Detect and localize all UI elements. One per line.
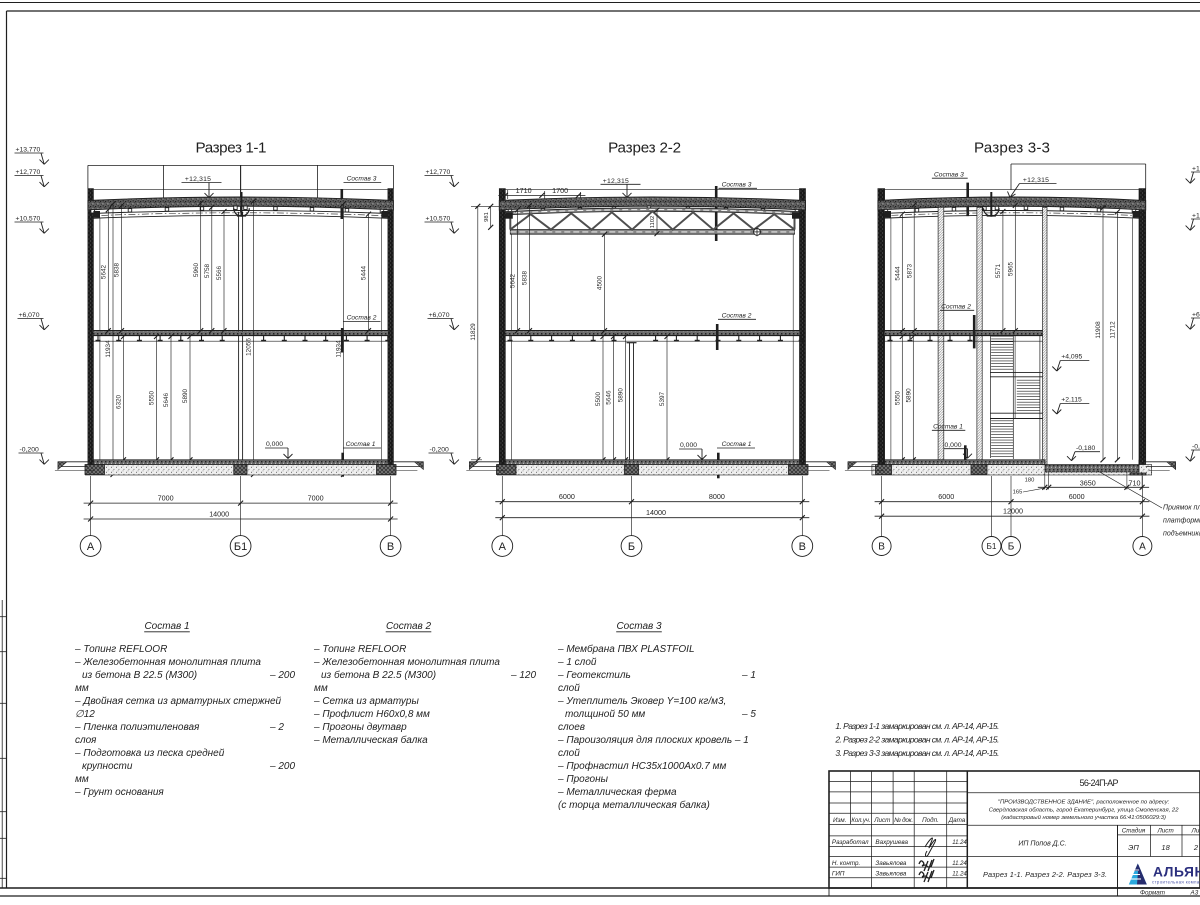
- svg-text:– 120: – 120: [510, 670, 536, 681]
- svg-text:12000: 12000: [1003, 507, 1023, 516]
- svg-text:5571: 5571: [995, 263, 1002, 278]
- svg-text:+12,770: +12,770: [1192, 165, 1200, 172]
- svg-text:ЭП: ЭП: [1128, 843, 1139, 852]
- svg-text:№ док.: № док.: [894, 816, 913, 824]
- svg-text:Разработал: Разработал: [832, 838, 869, 846]
- svg-text:Б: Б: [1008, 542, 1015, 553]
- svg-text:1700: 1700: [552, 186, 568, 195]
- svg-text:Н. контр.: Н. контр.: [832, 860, 860, 867]
- svg-text:11934: 11934: [105, 340, 112, 358]
- svg-text:5965: 5965: [1007, 261, 1014, 276]
- svg-text:+12,315: +12,315: [603, 178, 629, 185]
- svg-text:Приямок пл: Приямок пл: [1163, 505, 1200, 512]
- svg-text:11829: 11829: [470, 323, 477, 341]
- svg-text:5444: 5444: [361, 265, 368, 280]
- svg-text:– 200: – 200: [269, 670, 295, 681]
- svg-text:+12,770: +12,770: [426, 169, 451, 176]
- svg-text:Разрез 3-3: Разрез 3-3: [974, 140, 1050, 157]
- svg-text:В: В: [878, 542, 885, 553]
- svg-text:(кадастровый номер земельного: (кадастровый номер земельного участка 66…: [1001, 814, 1166, 821]
- svg-text:165: 165: [1013, 490, 1023, 496]
- svg-text:Разрез 2-2: Разрез 2-2: [608, 140, 681, 157]
- svg-text:5838: 5838: [114, 262, 121, 277]
- svg-text:– Металлическая балка: – Металлическая балка: [313, 734, 428, 746]
- svg-text:Разрез 1-1. Разрез 2-2. Разрез: Разрез 1-1. Разрез 2-2. Разрез 3-3.: [983, 870, 1107, 879]
- svg-text:Изм.: Изм.: [833, 817, 846, 824]
- svg-text:Формат: Формат: [1140, 890, 1165, 897]
- svg-text:5444: 5444: [894, 266, 901, 281]
- svg-text:Состав 2: Состав 2: [722, 313, 752, 320]
- svg-text:– Мембрана ПВХ PLASTFOIL: – Мембрана ПВХ PLASTFOIL: [557, 643, 695, 655]
- svg-text:7000: 7000: [158, 494, 174, 503]
- svg-text:– Прогоны: – Прогоны: [557, 774, 609, 785]
- svg-text:слоев: слоев: [558, 722, 585, 733]
- svg-text:6320: 6320: [116, 394, 123, 409]
- svg-text:строительная компания: строительная компания: [1152, 879, 1200, 884]
- svg-text:Состав 1: Состав 1: [933, 424, 963, 431]
- svg-text:Б1: Б1: [987, 542, 997, 551]
- svg-text:5890: 5890: [905, 388, 912, 403]
- svg-text:0,000: 0,000: [680, 442, 697, 449]
- svg-text:-0,200: -0,200: [20, 446, 39, 453]
- svg-text:– Двойная сетка из арматурных: – Двойная сетка из арматурных стержней: [74, 696, 282, 707]
- svg-text:АЛЬЯНС: АЛЬЯНС: [1153, 865, 1200, 880]
- svg-text:14000: 14000: [209, 509, 229, 518]
- svg-text:– Топинг REFLOOR: – Топинг REFLOOR: [313, 644, 406, 655]
- svg-text:– Грунт основания: – Грунт основания: [74, 787, 164, 798]
- svg-text:из бетона В 22.5 (М300): из бетона В 22.5 (М300): [321, 669, 436, 681]
- svg-text:Состав 2: Состав 2: [386, 621, 432, 632]
- svg-text:5550: 5550: [894, 390, 901, 405]
- svg-text:-0,200: -0,200: [430, 446, 449, 453]
- svg-text:2. Разрез 2-2 замаркирован см.: 2. Разрез 2-2 замаркирован см. л. АР-14,…: [834, 735, 999, 745]
- svg-text:– 2: – 2: [269, 722, 284, 733]
- svg-text:– 5: – 5: [741, 709, 756, 720]
- svg-text:– Геотекстиль: – Геотекстиль: [557, 670, 631, 681]
- svg-text:1710: 1710: [516, 186, 532, 195]
- svg-text:6000: 6000: [1069, 492, 1085, 501]
- svg-text:11.24: 11.24: [952, 840, 967, 846]
- svg-text:+2,115: +2,115: [1061, 397, 1082, 404]
- svg-text:платформы: платформы: [1163, 518, 1200, 525]
- svg-text:– 1 слой: – 1 слой: [557, 657, 597, 668]
- svg-text:6000: 6000: [559, 492, 575, 501]
- svg-text:слой: слой: [558, 748, 580, 759]
- svg-text:-0,200: -0,200: [1192, 443, 1200, 450]
- svg-text:0,000: 0,000: [266, 441, 283, 448]
- svg-text:Б: Б: [628, 541, 635, 553]
- svg-text:6000: 6000: [938, 492, 954, 501]
- svg-text:Лист: Лист: [873, 817, 890, 824]
- svg-text:"ПРОИЗВОДСТВЕННОЕ ЗДАНИЕ", рас: "ПРОИЗВОДСТВЕННОЕ ЗДАНИЕ", расположенное…: [998, 800, 1170, 806]
- svg-text:710: 710: [1129, 479, 1141, 488]
- svg-text:5397: 5397: [659, 391, 666, 406]
- svg-text:– Железобетонная монолитная п: – Железобетонная монолитная плита: [74, 656, 261, 668]
- svg-text:5890: 5890: [182, 388, 189, 403]
- svg-text:5838: 5838: [522, 270, 529, 285]
- svg-text:5758: 5758: [204, 263, 211, 278]
- svg-text:5550: 5550: [149, 390, 156, 405]
- svg-text:+6,070: +6,070: [19, 312, 40, 319]
- svg-text:2: 2: [1193, 843, 1199, 852]
- svg-text:– 1: – 1: [741, 670, 756, 681]
- svg-text:мм: мм: [75, 683, 89, 694]
- svg-text:В: В: [799, 541, 806, 553]
- svg-text:12056: 12056: [246, 338, 253, 356]
- svg-text:5566: 5566: [216, 265, 223, 280]
- svg-text:толщиной 50 мм: толщиной 50 мм: [565, 709, 645, 720]
- svg-text:Лист: Лист: [1156, 828, 1173, 835]
- svg-text:7000: 7000: [308, 494, 324, 503]
- svg-text:11.24: 11.24: [952, 871, 967, 877]
- svg-text:– 200: – 200: [269, 761, 295, 772]
- svg-text:В: В: [387, 541, 394, 553]
- svg-text:– Пленка полиэтиленовая: – Пленка полиэтиленовая: [74, 722, 200, 733]
- svg-text:мм: мм: [75, 774, 89, 785]
- svg-text:(с торца металлическая балка): (с торца металлическая балка): [558, 799, 710, 811]
- svg-text:Состав 3: Состав 3: [616, 621, 662, 632]
- svg-text:18: 18: [1161, 843, 1170, 852]
- svg-text:3650: 3650: [1080, 479, 1096, 488]
- svg-text:ГИП: ГИП: [832, 870, 845, 877]
- svg-text:– Топинг REFLOOR: – Топинг REFLOOR: [74, 644, 167, 655]
- svg-text:14000: 14000: [646, 508, 666, 517]
- svg-text:∅12: ∅12: [75, 709, 95, 720]
- svg-text:– Пароизоляция для плоских кро: – Пароизоляция для плоских кровель – 1: [557, 735, 749, 746]
- svg-text:+6,070: +6,070: [429, 312, 450, 319]
- svg-text:слоя: слоя: [75, 735, 97, 746]
- svg-text:8000: 8000: [709, 492, 725, 501]
- svg-text:– Подготовка из песка средней: – Подготовка из песка средней: [74, 748, 225, 759]
- svg-text:ИП Попов Д.С.: ИП Попов Д.С.: [1018, 841, 1066, 848]
- svg-text:Состав 3: Состав 3: [722, 182, 752, 189]
- svg-text:5646: 5646: [606, 390, 613, 405]
- svg-text:5642: 5642: [510, 273, 517, 288]
- svg-text:Состав 3: Состав 3: [347, 176, 377, 183]
- svg-text:– Металлическая ферма: – Металлическая ферма: [557, 786, 677, 798]
- svg-text:Состав 2: Состав 2: [941, 304, 971, 311]
- svg-text:+13,770: +13,770: [16, 146, 41, 153]
- svg-text:5646: 5646: [163, 392, 170, 407]
- svg-text:5873: 5873: [906, 263, 913, 278]
- svg-text:подъемника: подъемника: [1163, 530, 1200, 538]
- svg-text:180: 180: [1025, 477, 1035, 483]
- svg-text:Состав 1: Состав 1: [346, 441, 376, 448]
- svg-text:+10,570: +10,570: [16, 215, 41, 222]
- svg-text:+6,070: +6,070: [1192, 311, 1200, 318]
- svg-text:-0,180: -0,180: [1076, 445, 1095, 452]
- svg-text:Свердловская область, город Ек: Свердловская область, город Екатеринбург…: [989, 807, 1180, 813]
- svg-text:Кол.уч.: Кол.уч.: [851, 818, 870, 824]
- svg-text:Разрез 1-1: Разрез 1-1: [196, 140, 267, 157]
- svg-text:А: А: [499, 541, 507, 553]
- svg-text:Вахрушева: Вахрушева: [875, 839, 908, 846]
- svg-text:– Прогоны двутавр: – Прогоны двутавр: [313, 722, 407, 733]
- svg-text:+12,770: +12,770: [16, 169, 41, 176]
- svg-text:из бетона В 22.5 (М300): из бетона В 22.5 (М300): [82, 669, 197, 681]
- svg-text:Стадия: Стадия: [1122, 827, 1146, 835]
- svg-text:5960: 5960: [193, 262, 200, 277]
- svg-text:Завьялова: Завьялова: [875, 860, 907, 867]
- svg-text:0,000: 0,000: [945, 442, 962, 449]
- svg-text:4500: 4500: [597, 275, 604, 290]
- svg-text:Состав 1: Состав 1: [144, 621, 189, 632]
- svg-text:11712: 11712: [1110, 321, 1117, 339]
- svg-text:3. Разрез 3-3 замаркирован см.: 3. Разрез 3-3 замаркирован см. л. АР-14,…: [835, 748, 999, 758]
- svg-text:мм: мм: [314, 683, 328, 694]
- svg-text:– Утеплитель Эковер Y=100 кг/м: – Утеплитель Эковер Y=100 кг/м3,: [557, 696, 726, 707]
- svg-text:5890: 5890: [618, 388, 625, 403]
- svg-text:+12,315: +12,315: [185, 176, 211, 183]
- svg-text:– Профнастил НС35х1000Ах0.7 мм: – Профнастил НС35х1000Ах0.7 мм: [557, 760, 726, 772]
- svg-text:Б1: Б1: [234, 541, 247, 553]
- svg-text:Состав 3: Состав 3: [934, 171, 964, 178]
- svg-text:А: А: [1139, 542, 1146, 553]
- svg-text:11.24: 11.24: [952, 861, 967, 867]
- svg-text:5642: 5642: [100, 264, 107, 279]
- svg-text:А3: А3: [1190, 890, 1199, 897]
- svg-text:5500: 5500: [595, 391, 602, 406]
- svg-text:Подп.: Подп.: [922, 816, 939, 824]
- svg-text:+10,570: +10,570: [1192, 212, 1200, 219]
- svg-text:Завьялова: Завьялова: [875, 870, 907, 877]
- svg-text:+10,570: +10,570: [426, 215, 451, 222]
- svg-text:1102: 1102: [650, 216, 656, 228]
- svg-text:981: 981: [484, 212, 490, 222]
- svg-text:Состав 1: Состав 1: [722, 441, 752, 448]
- svg-text:11908: 11908: [1095, 321, 1102, 339]
- svg-text:56-24П-АР: 56-24П-АР: [1080, 778, 1119, 788]
- svg-text:Состав 2: Состав 2: [347, 315, 377, 322]
- svg-text:слой: слой: [558, 683, 580, 694]
- svg-text:– Железобетонная монолитная п: – Железобетонная монолитная плита: [313, 656, 500, 668]
- svg-text:крупности: крупности: [82, 761, 133, 772]
- svg-text:+12,315: +12,315: [1023, 177, 1049, 184]
- svg-text:– Профлист Н60х0,8 мм: – Профлист Н60х0,8 мм: [313, 708, 430, 720]
- svg-text:Дата: Дата: [948, 817, 966, 824]
- svg-text:– Сетка из арматуры: – Сетка из арматуры: [313, 696, 419, 707]
- svg-text:1. Разрез 1-1 замаркирован см.: 1. Разрез 1-1 замаркирован см. л. АР-14,…: [835, 721, 999, 731]
- svg-text:+4,095: +4,095: [1061, 354, 1082, 361]
- svg-text:Листов: Листов: [1191, 828, 1200, 835]
- svg-text:А: А: [87, 541, 95, 553]
